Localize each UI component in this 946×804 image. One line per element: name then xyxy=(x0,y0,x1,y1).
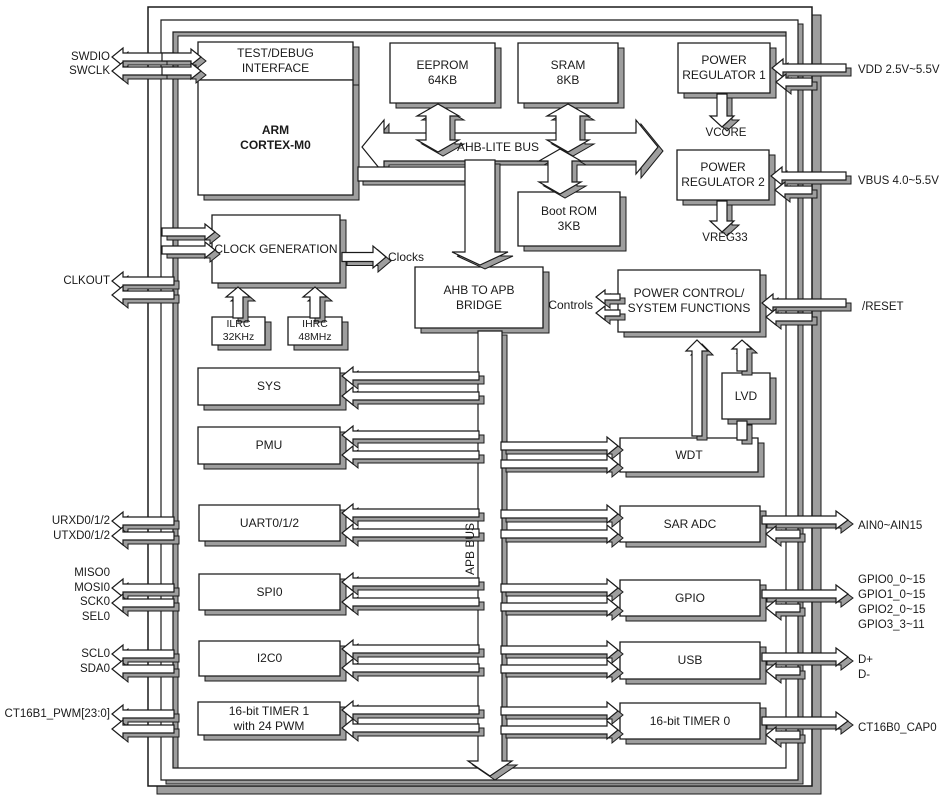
block-lvd xyxy=(722,373,776,424)
diagram-canvas xyxy=(0,0,946,804)
pin-label-d-minus: D- xyxy=(858,667,946,683)
mcu-block-diagram: TEST/DEBUG INTERFACE ARM CORTEX-M0 EEPRO… xyxy=(0,0,946,804)
block-arm-cortex-m0 xyxy=(198,80,359,200)
pin-label-sck0: SCK0 xyxy=(0,594,110,610)
block-clock-generation xyxy=(212,215,346,288)
pin-label-d-plus: D+ xyxy=(858,652,946,668)
label-apb-bus: APB BUS xyxy=(462,514,478,584)
pin-label-miso0: MISO0 xyxy=(0,565,110,581)
label-clocks: Clocks xyxy=(388,249,424,265)
block-ahb-to-apb-bridge xyxy=(415,267,549,333)
block-usb xyxy=(620,642,766,684)
block-boot-rom xyxy=(518,192,626,251)
pin-label-clkout: CLKOUT xyxy=(0,273,110,289)
pin-label-gpio2: GPIO2_0~15 xyxy=(858,602,946,618)
block-sram xyxy=(518,43,624,108)
pin-label-reset: /RESET xyxy=(862,299,946,315)
pin-label-gpio0: GPIO0_0~15 xyxy=(858,572,946,588)
block-spi0 xyxy=(199,574,346,615)
block-eeprom xyxy=(390,43,501,108)
pin-label-gpio1: GPIO1_0~15 xyxy=(858,587,946,603)
pin-label-utxd: UTXD0/1/2 xyxy=(0,528,110,544)
label-vreg33: VREG33 xyxy=(685,231,765,245)
block-power-regulator-1 xyxy=(678,43,776,98)
pin-label-urxd: URXD0/1/2 xyxy=(0,513,110,529)
wire-arm-bridge-link xyxy=(358,167,477,185)
block-i2c0 xyxy=(199,641,346,681)
pin-label-ct16b1-pwm: CT16B1_PWM[23:0] xyxy=(0,706,110,722)
block-16bit-timer-1 xyxy=(198,702,346,740)
pin-label-vdd: VDD 2.5V~5.5V xyxy=(858,62,946,78)
pin-label-sda0: SDA0 xyxy=(0,661,110,677)
pin-label-sel0: SEL0 xyxy=(0,609,110,625)
pin-label-gpio3: GPIO3_3~11 xyxy=(858,617,946,633)
block-power-regulator-2 xyxy=(677,150,775,205)
label-vcore: VCORE xyxy=(686,126,766,140)
label-controls: Controls xyxy=(533,297,593,313)
block-sar-adc xyxy=(620,506,766,547)
pin-label-vbus: VBUS 4.0~5.5V xyxy=(858,173,946,189)
block-pmu xyxy=(198,427,346,469)
label-ahb-lite-bus: AHB-LITE BUS xyxy=(438,139,558,155)
block-16bit-timer-0 xyxy=(620,703,766,744)
block-test-debug-interface xyxy=(198,42,359,85)
pin-label-swclk: SWCLK xyxy=(0,63,110,79)
block-gpio xyxy=(620,580,766,621)
block-power-control-system-functions xyxy=(618,270,766,337)
pin-label-ct16b0-cap0: CT16B0_CAP0 xyxy=(858,720,946,736)
block-uart012 xyxy=(199,505,346,546)
block-sys xyxy=(198,368,346,410)
pin-label-ain: AIN0~AIN15 xyxy=(858,518,946,534)
pin-label-scl0: SCL0 xyxy=(0,646,110,662)
